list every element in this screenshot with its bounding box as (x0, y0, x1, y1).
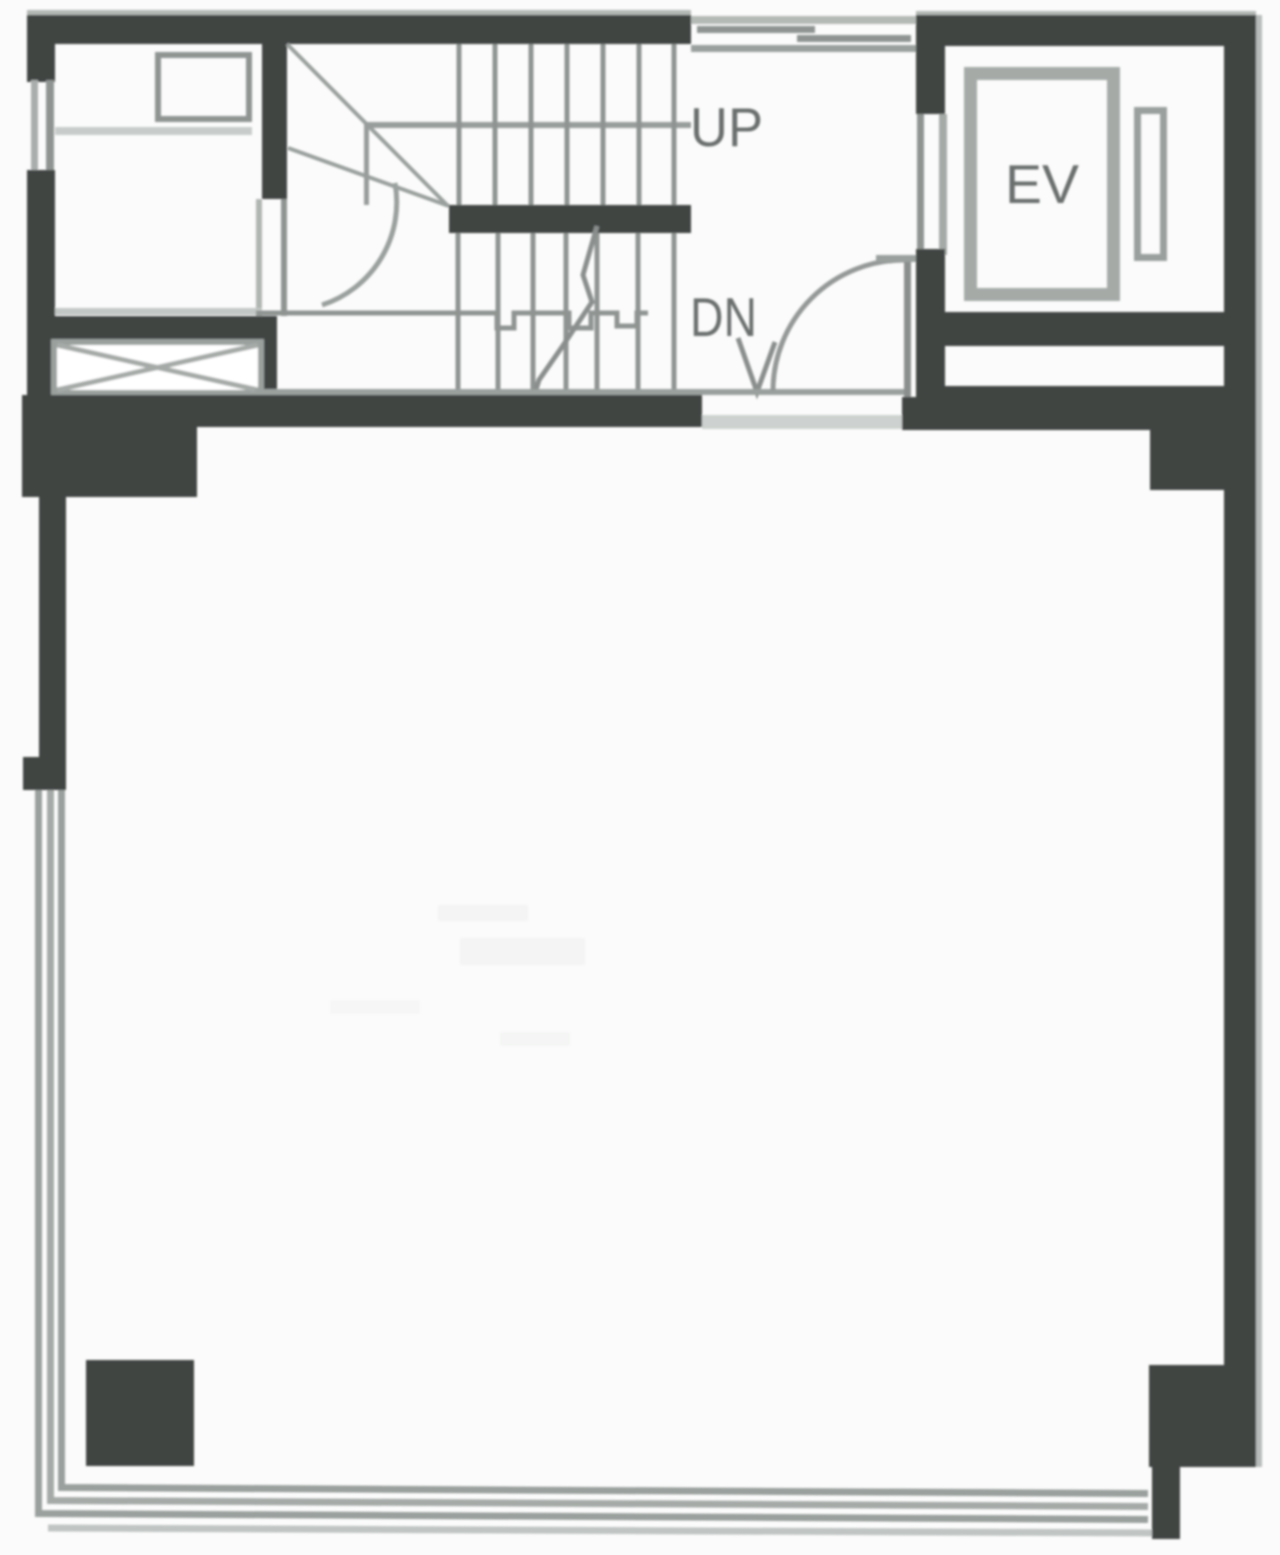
svg-text:DN: DN (690, 286, 757, 348)
svg-text:UP: UP (690, 96, 763, 158)
svg-text:EV: EV (1005, 153, 1079, 215)
